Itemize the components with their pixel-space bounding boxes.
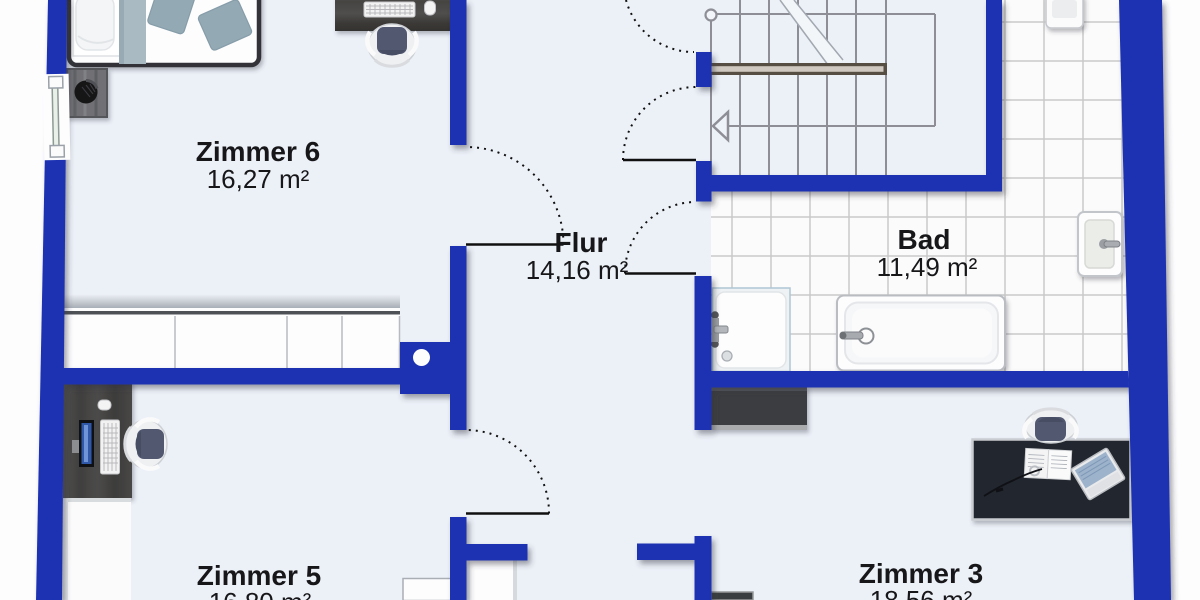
svg-text:18,56 m²: 18,56 m² bbox=[870, 585, 973, 600]
svg-text:Flur: Flur bbox=[555, 227, 608, 258]
svg-text:16,27 m²: 16,27 m² bbox=[207, 164, 310, 194]
svg-text:16,80 m²: 16,80 m² bbox=[209, 587, 312, 600]
svg-text:Bad: Bad bbox=[898, 224, 951, 255]
svg-text:14,16 m²: 14,16 m² bbox=[526, 255, 629, 285]
svg-text:11,49 m²: 11,49 m² bbox=[877, 252, 978, 282]
svg-text:Zimmer 6: Zimmer 6 bbox=[196, 136, 321, 167]
